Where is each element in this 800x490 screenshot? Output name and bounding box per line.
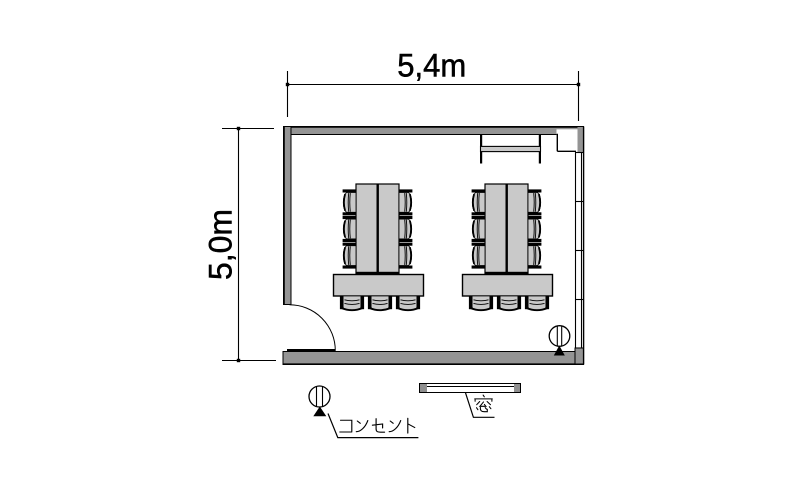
svg-text:5,4m: 5,4m [397, 48, 466, 84]
svg-text:5,0m: 5,0m [203, 209, 239, 280]
